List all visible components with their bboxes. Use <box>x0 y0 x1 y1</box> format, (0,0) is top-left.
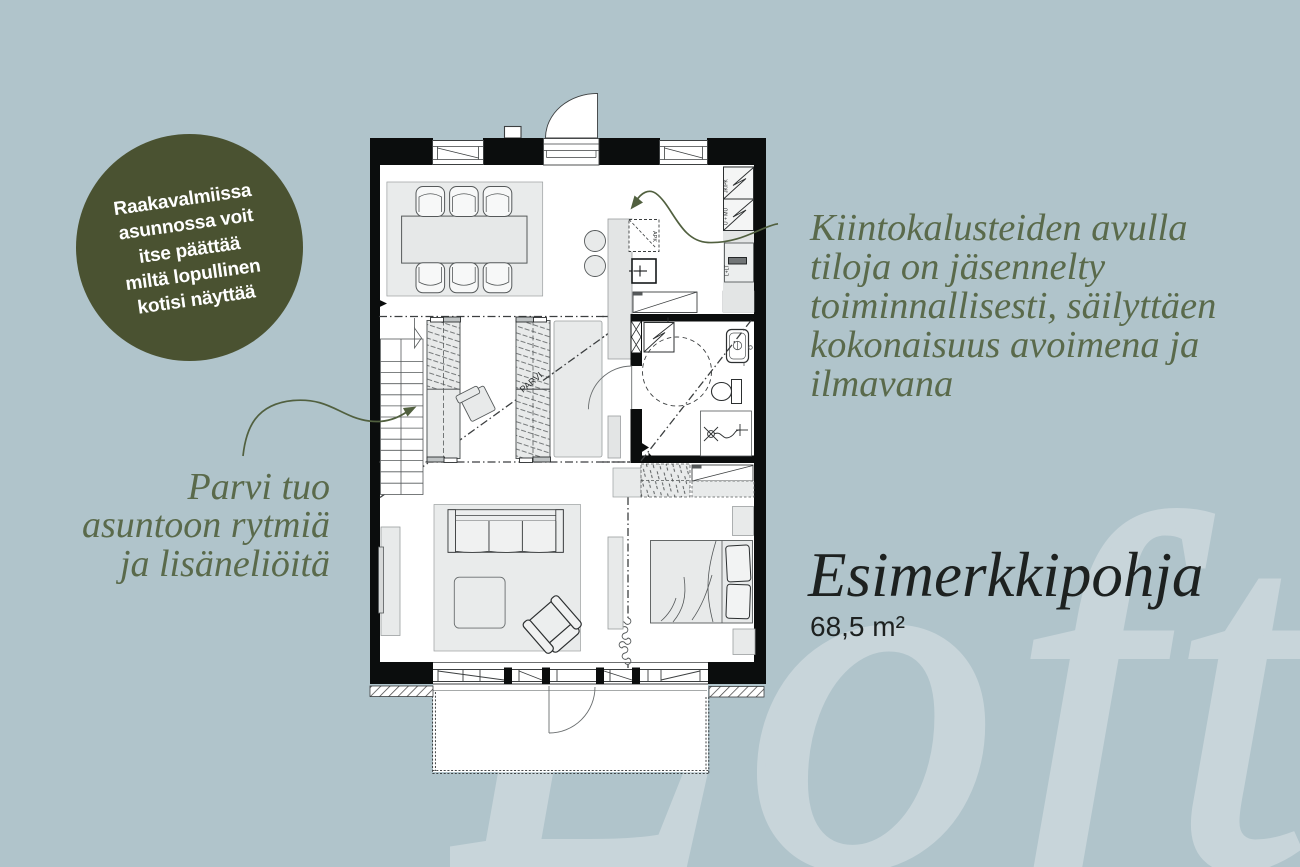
svg-text:JK/PK: JK/PK <box>724 178 730 193</box>
svg-text:U + MU: U + MU <box>724 208 730 225</box>
svg-text:APK: APK <box>651 231 657 242</box>
svg-text:L+LT: L+LT <box>725 265 731 276</box>
